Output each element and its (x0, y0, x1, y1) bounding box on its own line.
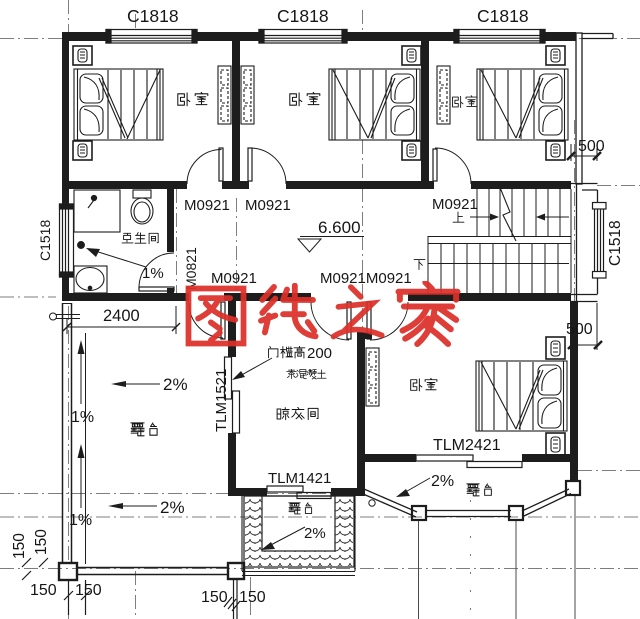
svg-text:1%: 1% (142, 265, 164, 282)
svg-text:2%: 2% (160, 498, 185, 517)
svg-text:150: 150 (33, 529, 50, 555)
svg-text:150: 150 (75, 582, 102, 599)
svg-text:2%: 2% (163, 375, 188, 394)
svg-text:2400: 2400 (103, 307, 140, 325)
svg-text:TLM1521: TLM1521 (213, 369, 230, 432)
svg-text:1%: 1% (71, 409, 94, 426)
svg-text:M0921: M0921 (184, 197, 230, 214)
svg-text:TLM1421: TLM1421 (268, 470, 331, 487)
svg-text:M0921M0921: M0921M0921 (320, 270, 412, 287)
svg-text:150: 150 (201, 589, 228, 606)
svg-text:TLM2421: TLM2421 (433, 437, 501, 454)
svg-text:6.600: 6.600 (318, 218, 361, 237)
svg-text:M0821: M0821 (183, 247, 199, 290)
svg-text:200: 200 (307, 345, 332, 362)
svg-text:C1818: C1818 (277, 6, 329, 26)
svg-text:C1818: C1818 (477, 6, 529, 26)
svg-text:2%: 2% (431, 473, 454, 490)
svg-text:500: 500 (578, 138, 605, 155)
svg-text:1%: 1% (69, 512, 92, 529)
svg-text:M0921: M0921 (211, 270, 257, 287)
svg-text:150: 150 (30, 582, 57, 599)
svg-text:C1518: C1518 (37, 220, 53, 261)
svg-text:C1818: C1818 (127, 6, 179, 26)
svg-text:150: 150 (11, 533, 28, 559)
svg-text:M0921: M0921 (432, 196, 478, 213)
svg-text:500: 500 (566, 321, 593, 338)
svg-text:C1518: C1518 (607, 220, 624, 266)
svg-text:2%: 2% (304, 525, 326, 542)
svg-text:150: 150 (239, 589, 266, 606)
svg-text:M0921: M0921 (245, 197, 291, 214)
